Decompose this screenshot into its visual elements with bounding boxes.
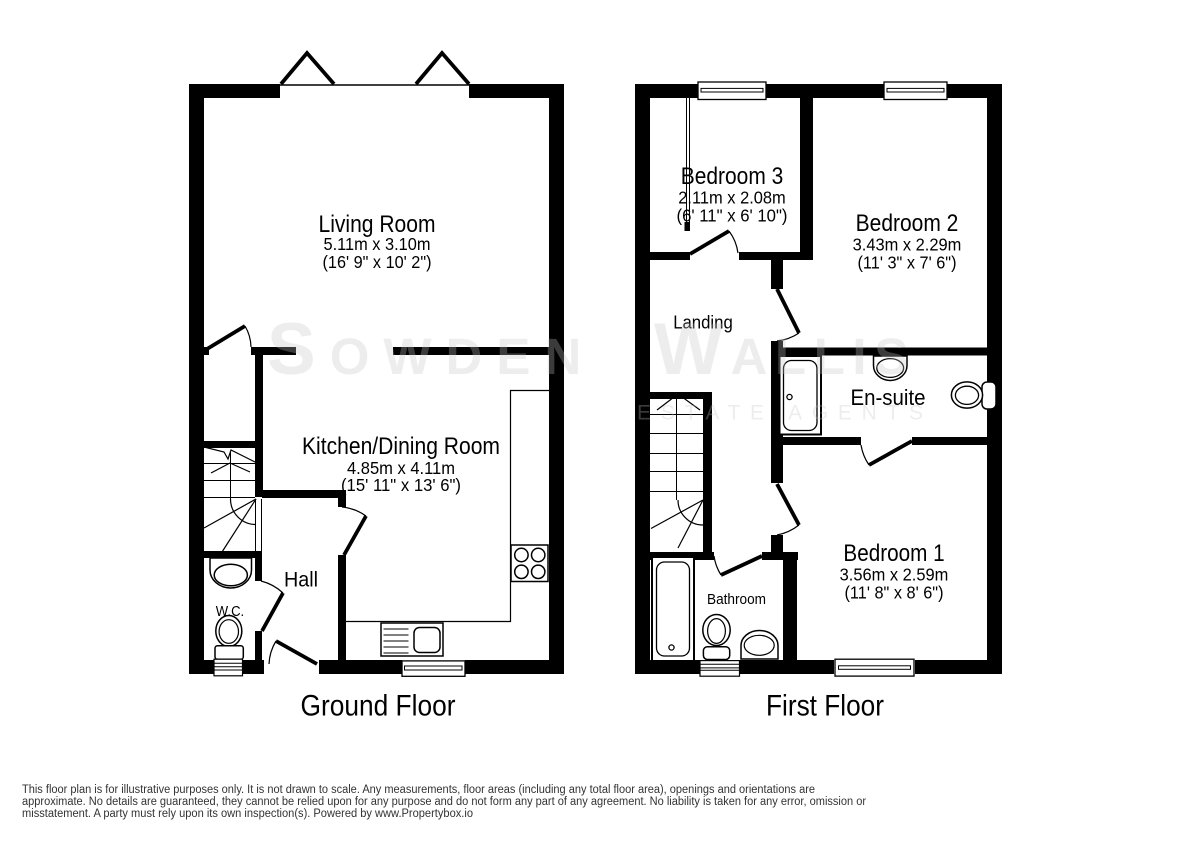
svg-text:First Floor: First Floor <box>766 690 884 723</box>
svg-text:Bedroom 3: Bedroom 3 <box>681 163 784 190</box>
svg-text:ESTATE AGENTS: ESTATE AGENTS <box>637 402 933 425</box>
svg-text:(11' 3" x 7' 6"): (11' 3" x 7' 6") <box>858 253 957 273</box>
svg-text:(16' 9" x 10' 2"): (16' 9" x 10' 2") <box>323 252 432 272</box>
svg-text:5.11m x 3.10m: 5.11m x 3.10m <box>324 234 431 254</box>
svg-text:Ground Floor: Ground Floor <box>301 690 456 723</box>
svg-text:Hall: Hall <box>284 569 318 592</box>
svg-text:Sowden: Sowden <box>267 309 595 390</box>
svg-text:(6' 11" x 6' 10"): (6' 11" x 6' 10") <box>677 206 788 226</box>
svg-text:Bedroom 1: Bedroom 1 <box>843 540 944 567</box>
svg-text:3.43m x 2.29m: 3.43m x 2.29m <box>853 235 962 255</box>
svg-text:Wallis: Wallis <box>654 309 916 390</box>
svg-text:Kitchen/Dining Room: Kitchen/Dining Room <box>302 433 500 460</box>
svg-text:3.56m x 2.59m: 3.56m x 2.59m <box>840 565 949 585</box>
svg-text:This floor plan is for illustr: This floor plan is for illustrative purp… <box>22 784 815 796</box>
svg-text:misstatement. A party must rel: misstatement. A party must rely upon its… <box>22 808 473 820</box>
svg-text:(11' 8" x 8' 6"): (11' 8" x 8' 6") <box>845 583 944 603</box>
svg-text:2.11m x 2.08m: 2.11m x 2.08m <box>678 188 786 208</box>
svg-text:W.C.: W.C. <box>216 603 244 620</box>
svg-text:Bathroom: Bathroom <box>707 591 766 608</box>
svg-text:Bedroom 2: Bedroom 2 <box>856 210 959 237</box>
svg-text:approximate. No details are gu: approximate. No details are guaranteed, … <box>22 796 866 808</box>
svg-text:(15' 11" x 13' 6"): (15' 11" x 13' 6") <box>341 475 461 495</box>
